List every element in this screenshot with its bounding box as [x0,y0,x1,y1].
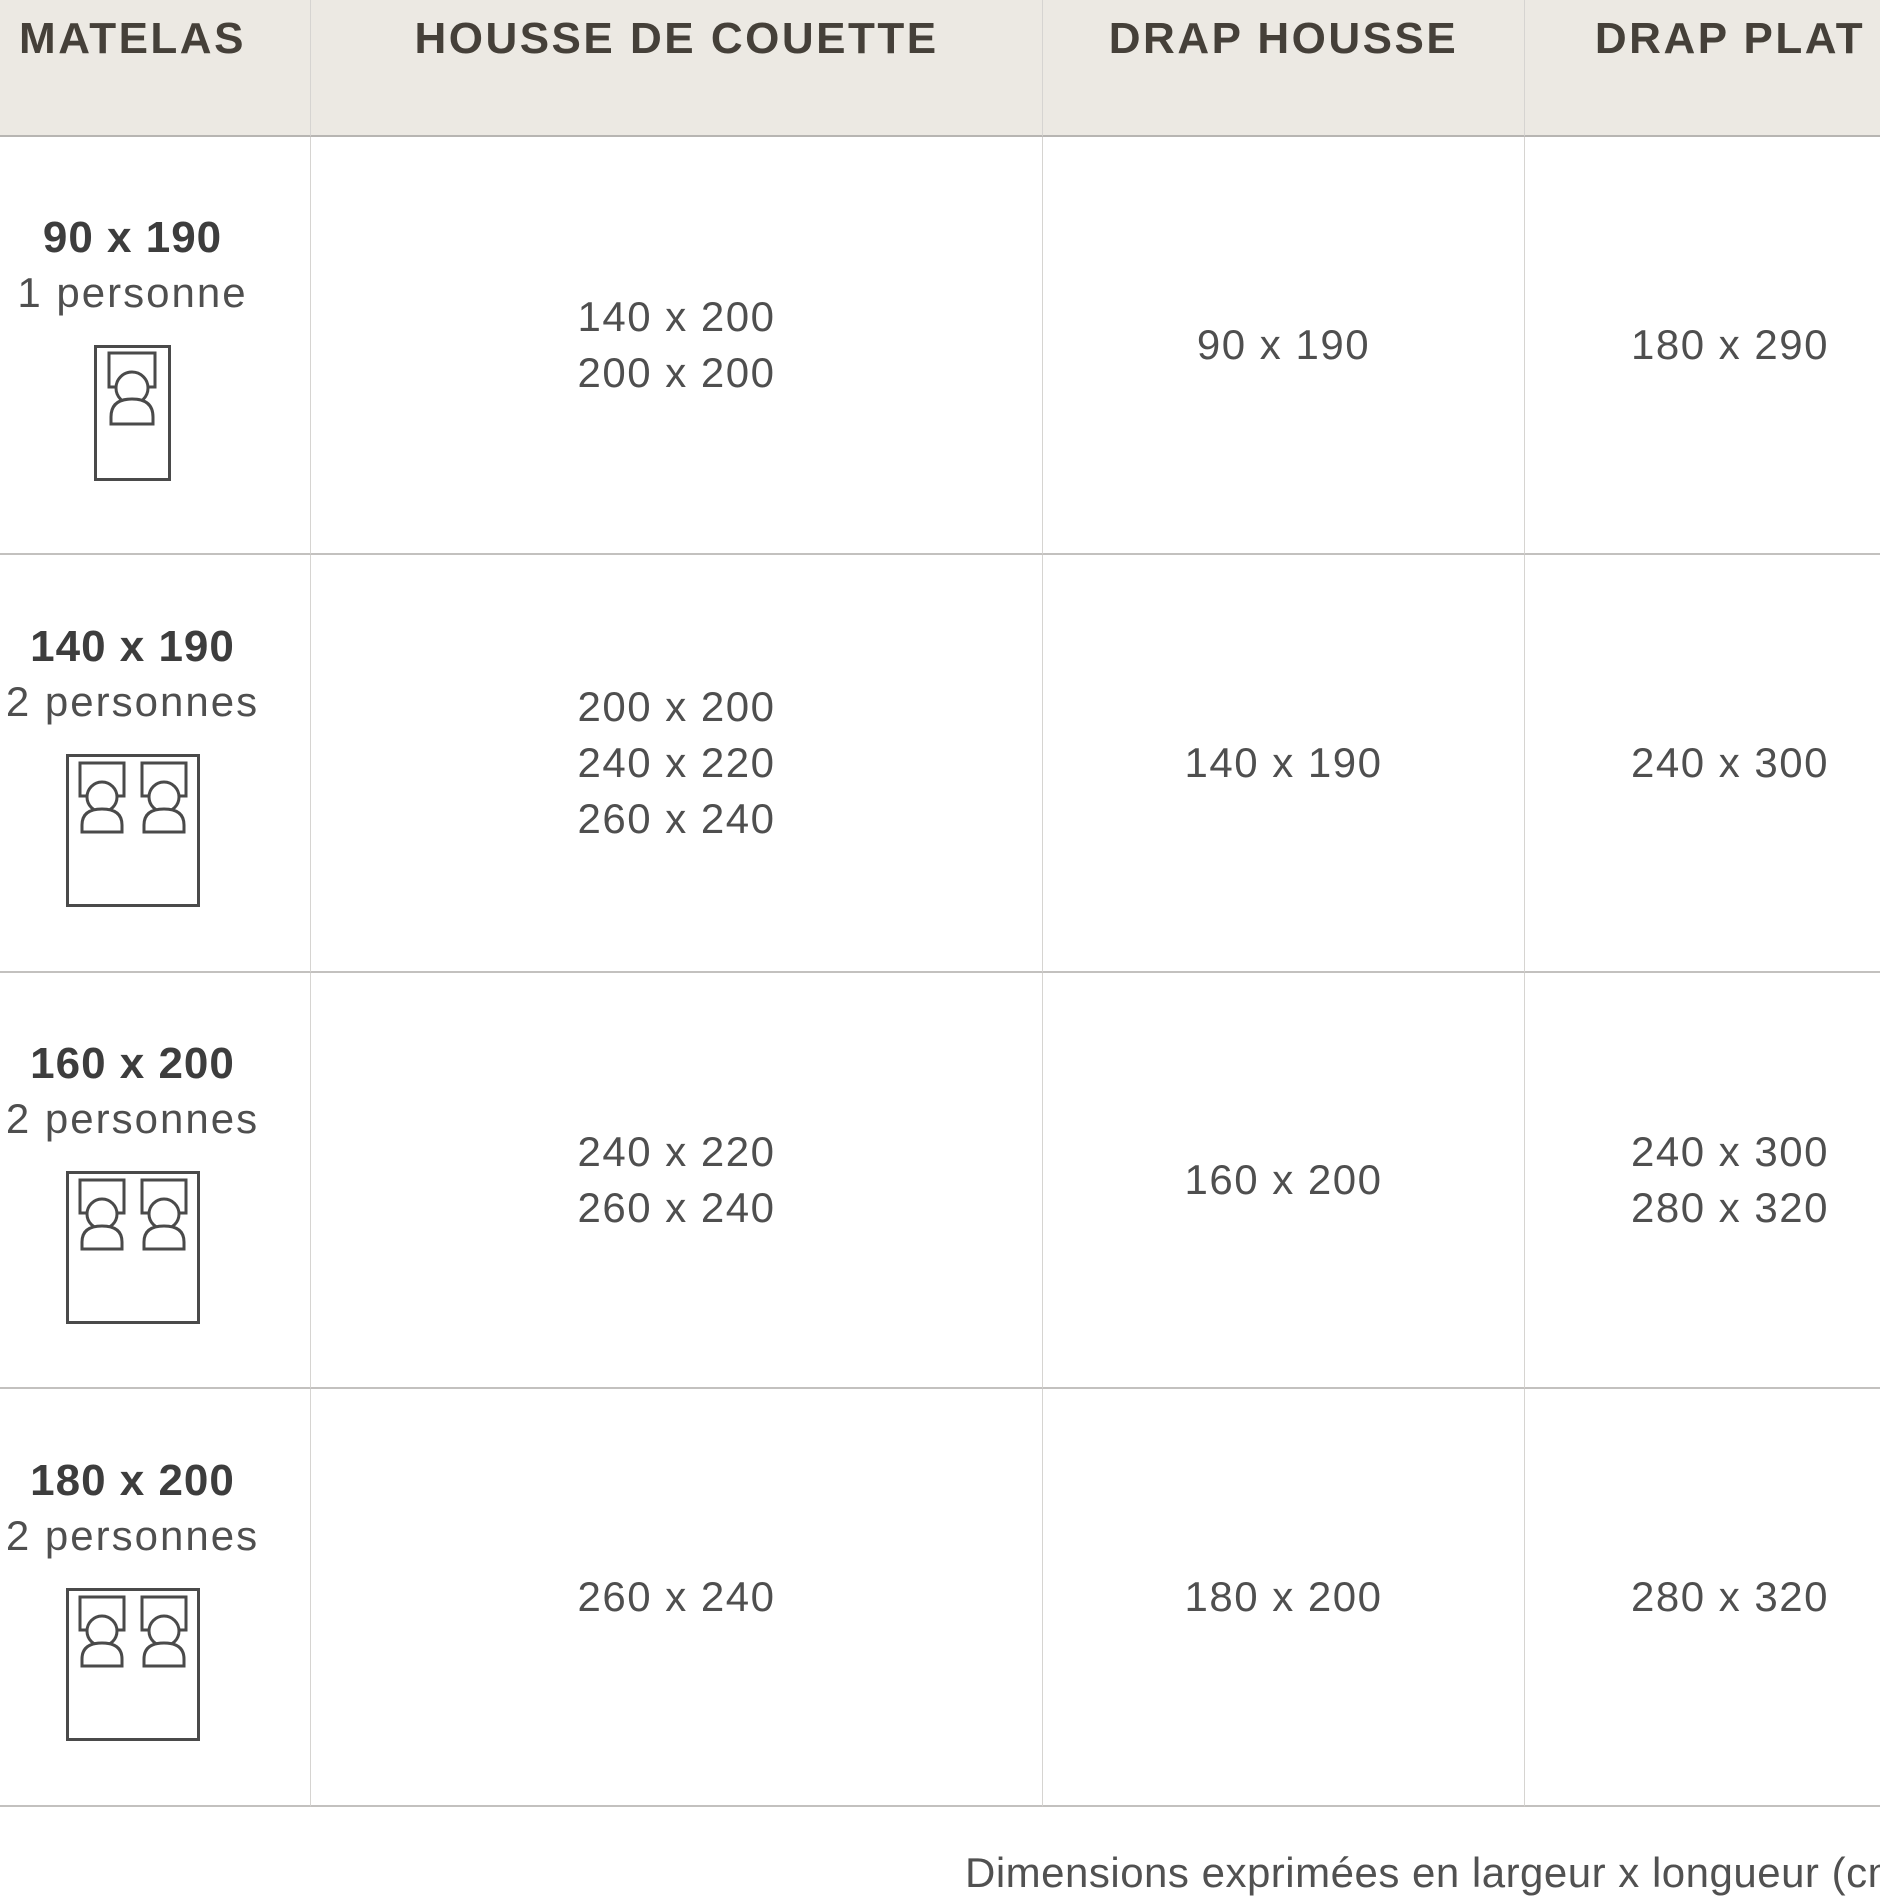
double-bed-icon [66,1588,200,1741]
column-header-housse-de-couette: HOUSSE DE COUETTE [311,0,1043,137]
size-value: 90 x 190 [1197,317,1370,373]
size-value: 140 x 190 [1185,735,1383,791]
double-bed-icon [66,754,200,907]
flat-sheet-cell: 240 x 300 280 x 320 [1525,973,1880,1389]
mattress-size-label: 180 x 200 [30,1453,235,1508]
size-value: 240 x 300 [1631,1124,1829,1180]
size-value: 240 x 220 [578,735,776,791]
persons-label: 2 personnes [6,674,259,729]
size-value: 260 x 240 [578,791,776,847]
size-value: 140 x 200 [578,289,776,345]
size-value: 180 x 290 [1631,317,1829,373]
flat-sheet-cell: 240 x 300 [1525,555,1880,973]
size-value: 280 x 320 [1631,1180,1829,1236]
column-header-label: DRAP PLAT [1595,14,1865,64]
column-header-label: HOUSSE DE COUETTE [414,14,938,64]
duvet-cover-cell: 200 x 200 240 x 220 260 x 240 [311,555,1043,973]
dimensions-note: Dimensions exprimées en largeur x longue… [965,1849,1880,1897]
matelas-cell: 160 x 200 2 personnes [0,973,311,1389]
size-value: 260 x 240 [578,1569,776,1625]
duvet-cover-cell: 260 x 240 [311,1389,1043,1807]
size-value: 180 x 200 [1185,1569,1383,1625]
matelas-cell: 90 x 190 1 personne [0,137,311,555]
size-value: 200 x 200 [578,679,776,735]
fitted-sheet-cell: 140 x 190 [1043,555,1525,973]
bedding-size-table: MATELAS HOUSSE DE COUETTE DRAP HOUSSE DR… [0,0,1880,1807]
size-value: 160 x 200 [1185,1152,1383,1208]
size-value: 280 x 320 [1631,1569,1829,1625]
matelas-cell: 180 x 200 2 personnes [0,1389,311,1807]
column-header-label: DRAP HOUSSE [1109,14,1458,64]
size-value: 260 x 240 [578,1180,776,1236]
duvet-cover-cell: 140 x 200 200 x 200 [311,137,1043,555]
column-header-matelas: MATELAS [0,0,311,137]
mattress-size-label: 160 x 200 [30,1036,235,1091]
double-bed-icon [66,1171,200,1324]
flat-sheet-cell: 180 x 290 [1525,137,1880,555]
duvet-cover-cell: 240 x 220 260 x 240 [311,973,1043,1389]
mattress-size-label: 90 x 190 [43,210,222,265]
mattress-size-label: 140 x 190 [30,619,235,674]
column-header-drap-housse: DRAP HOUSSE [1043,0,1525,137]
persons-label: 1 personne [17,265,247,320]
fitted-sheet-cell: 160 x 200 [1043,973,1525,1389]
fitted-sheet-cell: 90 x 190 [1043,137,1525,555]
column-header-drap-plat: DRAP PLAT [1525,0,1880,137]
flat-sheet-cell: 280 x 320 [1525,1389,1880,1807]
column-header-label: MATELAS [19,14,246,64]
persons-label: 2 personnes [6,1508,259,1563]
single-bed-icon [94,345,171,481]
fitted-sheet-cell: 180 x 200 [1043,1389,1525,1807]
size-value: 200 x 200 [578,345,776,401]
matelas-cell: 140 x 190 2 personnes [0,555,311,973]
size-value: 240 x 300 [1631,735,1829,791]
persons-label: 2 personnes [6,1091,259,1146]
size-value: 240 x 220 [578,1124,776,1180]
